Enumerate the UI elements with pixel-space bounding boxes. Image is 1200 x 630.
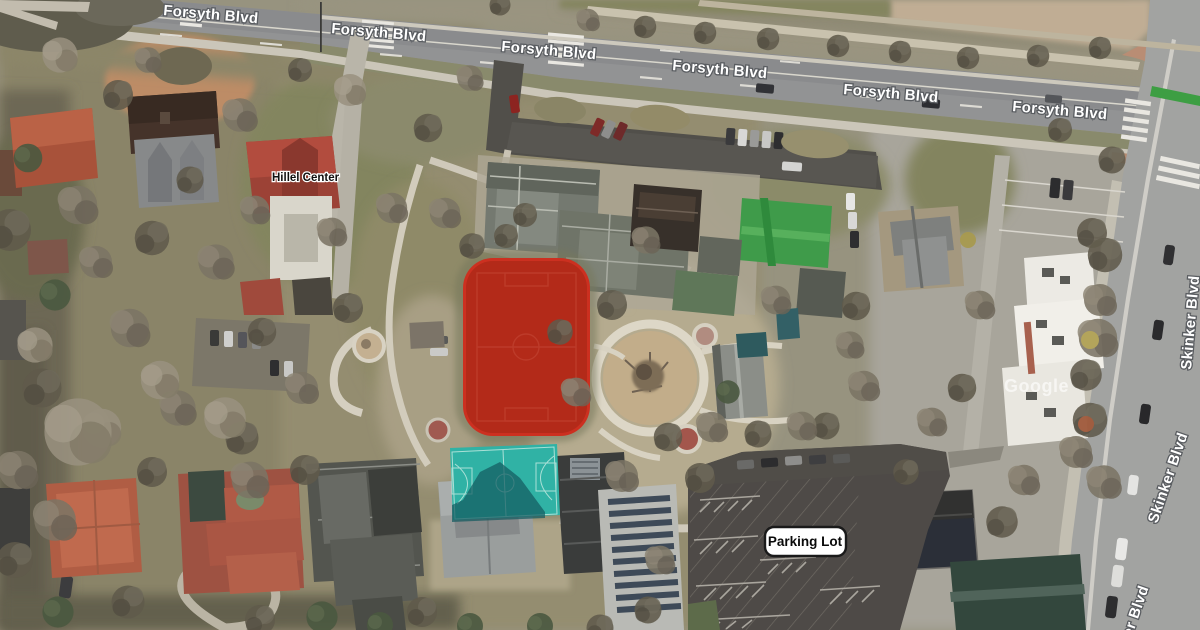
svg-text:Google: Google bbox=[1004, 376, 1069, 396]
svg-text:Parking Lot: Parking Lot bbox=[768, 534, 843, 549]
svg-text:Hillel Center: Hillel Center bbox=[272, 172, 340, 184]
